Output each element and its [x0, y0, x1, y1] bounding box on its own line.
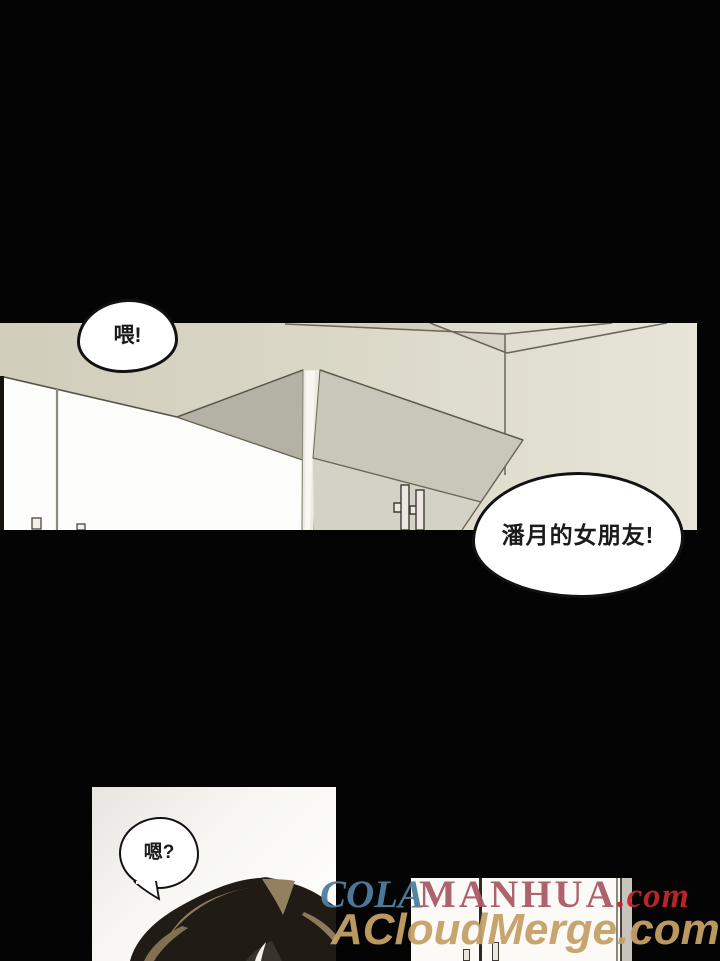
- speech-bubble-tail: [131, 881, 165, 905]
- speech-text-girlfriend: 潘月的女朋友!: [502, 522, 655, 548]
- panel-left-shadow: [0, 376, 4, 530]
- speech-text-hey: 喂!: [114, 324, 142, 348]
- speech-bubble-hey: 喂!: [77, 299, 178, 373]
- speech-bubble-hmm: 嗯?: [119, 817, 199, 889]
- speech-text-hmm: 嗯?: [144, 842, 175, 864]
- speech-bubble-girlfriend: 潘月的女朋友!: [472, 472, 684, 598]
- watermark-acloudmerge: ACloudMerge.com: [331, 905, 720, 955]
